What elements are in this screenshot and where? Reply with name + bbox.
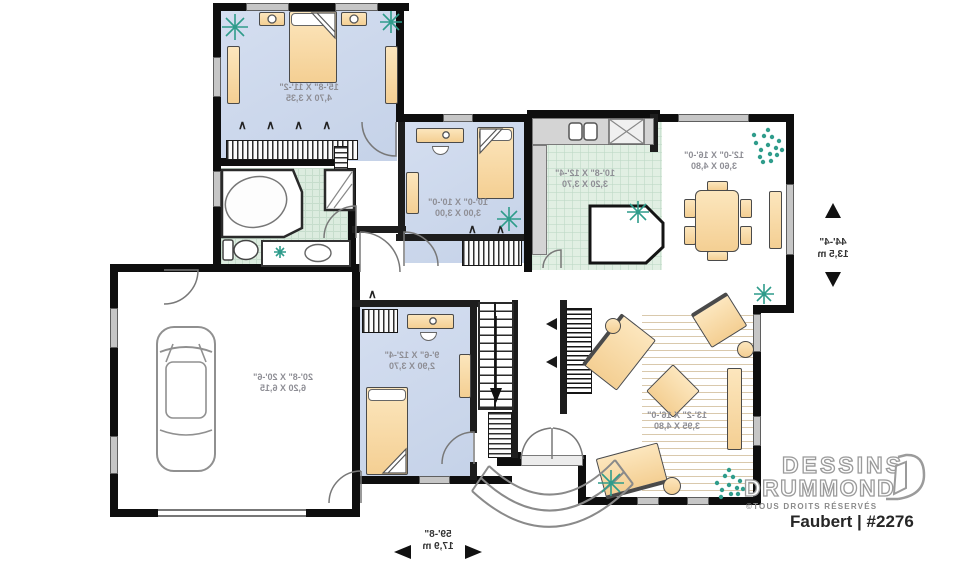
- kitchen-island: [590, 206, 663, 263]
- porch-steps: [472, 460, 633, 527]
- dims-imperial: 12'-0" X 16'-0": [654, 150, 774, 161]
- dims-metric: 2,90 X 3,70: [352, 361, 472, 372]
- brand-name-line2: DRUMMOND: [744, 475, 895, 502]
- dims-metric: 3,60 X 4,80: [654, 161, 774, 172]
- dining-room-dims: 12'-0" X 16'-0" 3,60 X 4,80: [654, 150, 774, 172]
- arrow-down-icon: [825, 272, 841, 287]
- overall-depth-dim: 44'-4" 13,5 m: [773, 237, 893, 261]
- arrow-right-icon: [465, 545, 482, 559]
- depth-ft: 44'-4": [773, 237, 893, 249]
- arrow-up-icon: [825, 203, 841, 218]
- dims-metric: 3,20 X 3,70: [525, 179, 645, 190]
- dims-imperial: 10'-8" X 12'-4": [525, 168, 645, 179]
- kitchen-sink: [569, 123, 597, 140]
- dims-metric: 6,20 X 6,15: [223, 383, 343, 394]
- toilet: [223, 240, 258, 260]
- living-room-dims: 13'-2" X 16'-0" 3,95 X 4,80: [617, 410, 737, 432]
- master-bedroom-dims: 15'-8" X 11'-2" 4,70 X 3,35: [249, 82, 369, 104]
- bush-plant-icon: [715, 128, 784, 499]
- dims-metric: 3,00 X 3,00: [398, 208, 518, 219]
- depth-m: 13,5 m: [773, 249, 893, 261]
- dims-imperial: 15'-8" X 11'-2": [249, 82, 369, 93]
- kitchen-dims: 10'-8" X 12'-4" 3,20 X 3,70: [525, 168, 645, 190]
- stairs-arrow: [490, 316, 502, 403]
- shower: [325, 170, 354, 210]
- plan-name-number: Faubert | #2276: [790, 512, 914, 532]
- dims-imperial: 10'-0" X 10'-0": [398, 197, 518, 208]
- width-ft: 59'-8": [378, 529, 498, 541]
- dims-imperial: 20'-8" X 20'-6": [223, 372, 343, 383]
- dims-metric: 3,95 X 4,80: [617, 421, 737, 432]
- brand-rights: ©TOUS DROITS RÉSERVÉS: [746, 502, 877, 511]
- dims-metric: 4,70 X 3,35: [249, 93, 369, 104]
- bedroom-3-dims: 9'-6" X 12'-4" 2,90 X 3,70: [352, 350, 472, 372]
- dims-imperial: 9'-6" X 12'-4": [352, 350, 472, 361]
- stove: [609, 119, 644, 144]
- table-lamps: [268, 15, 449, 324]
- car: [157, 327, 215, 471]
- bedroom-2-dims: 10'-0" X 10'-0" 3,00 X 3,00: [398, 197, 518, 219]
- arrow-left-icon: [394, 545, 411, 559]
- garage-dims: 20'-8" X 20'-6" 6,20 X 6,15: [223, 372, 343, 394]
- brand-door-logo-icon: [884, 450, 926, 502]
- brand-block: DESSINS DRUMMOND ©TOUS DROITS RÉSERVÉS F…: [740, 448, 958, 538]
- dims-imperial: 13'-2" X 16'-0": [617, 410, 737, 421]
- bathtub: [220, 170, 302, 237]
- floor-plan-image: ∧ ∧ ∧ ∧ ∧ ∧ ∧: [0, 0, 960, 569]
- vanity-sink: [262, 241, 350, 266]
